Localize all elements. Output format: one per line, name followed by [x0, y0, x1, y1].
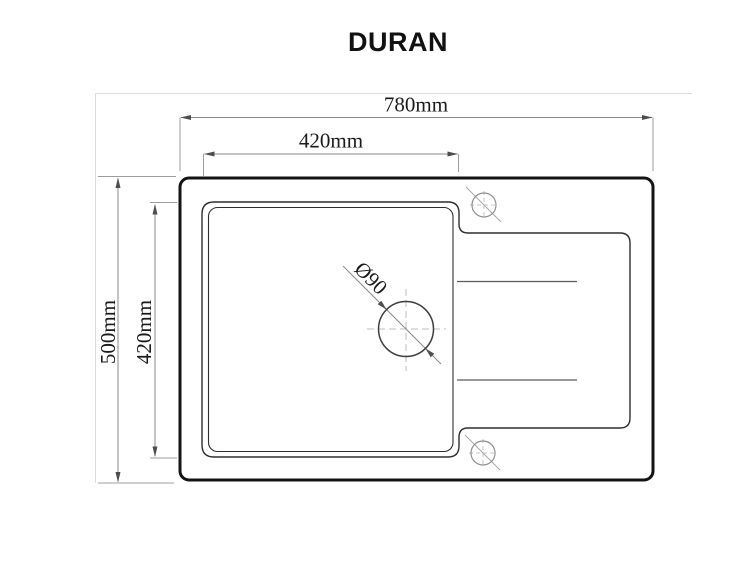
arrowhead-left: [181, 115, 192, 120]
overall-width-label: 780mm: [384, 93, 448, 117]
arrowhead-right: [448, 152, 459, 157]
bowl-depth-label: 420mm: [132, 300, 156, 364]
arrowhead-top: [153, 204, 158, 215]
arrowhead-bottom: [153, 447, 158, 458]
dim-bowl-width: 420mm: [204, 129, 459, 177]
arrowhead-bottom: [116, 472, 121, 483]
sink-spec-sheet: DURAN 780mm 420mm: [0, 0, 750, 579]
overall-depth-label: 500mm: [96, 300, 120, 364]
dim-overall-width: 780mm: [180, 93, 653, 172]
arrowhead-right: [642, 115, 653, 120]
sink-technical-drawing: 780mm 420mm 500mm 420mm: [0, 0, 750, 579]
arrowhead-top: [116, 178, 121, 189]
arrowhead-left: [204, 152, 215, 157]
bowl-width-label: 420mm: [299, 129, 363, 153]
dim-bowl-depth: 420mm: [132, 203, 177, 459]
